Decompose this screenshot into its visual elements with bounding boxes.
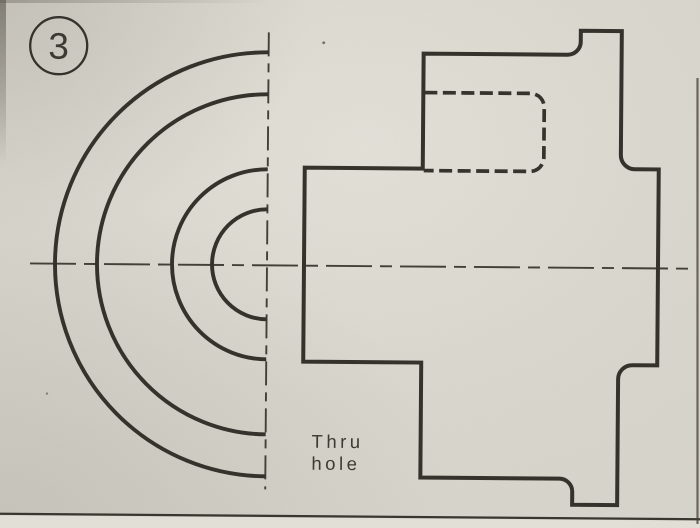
engineering-drawing: 3 Thru hole [0, 0, 700, 528]
paper-grain [0, 0, 700, 528]
drawing-photo: 3 Thru hole [0, 0, 700, 528]
